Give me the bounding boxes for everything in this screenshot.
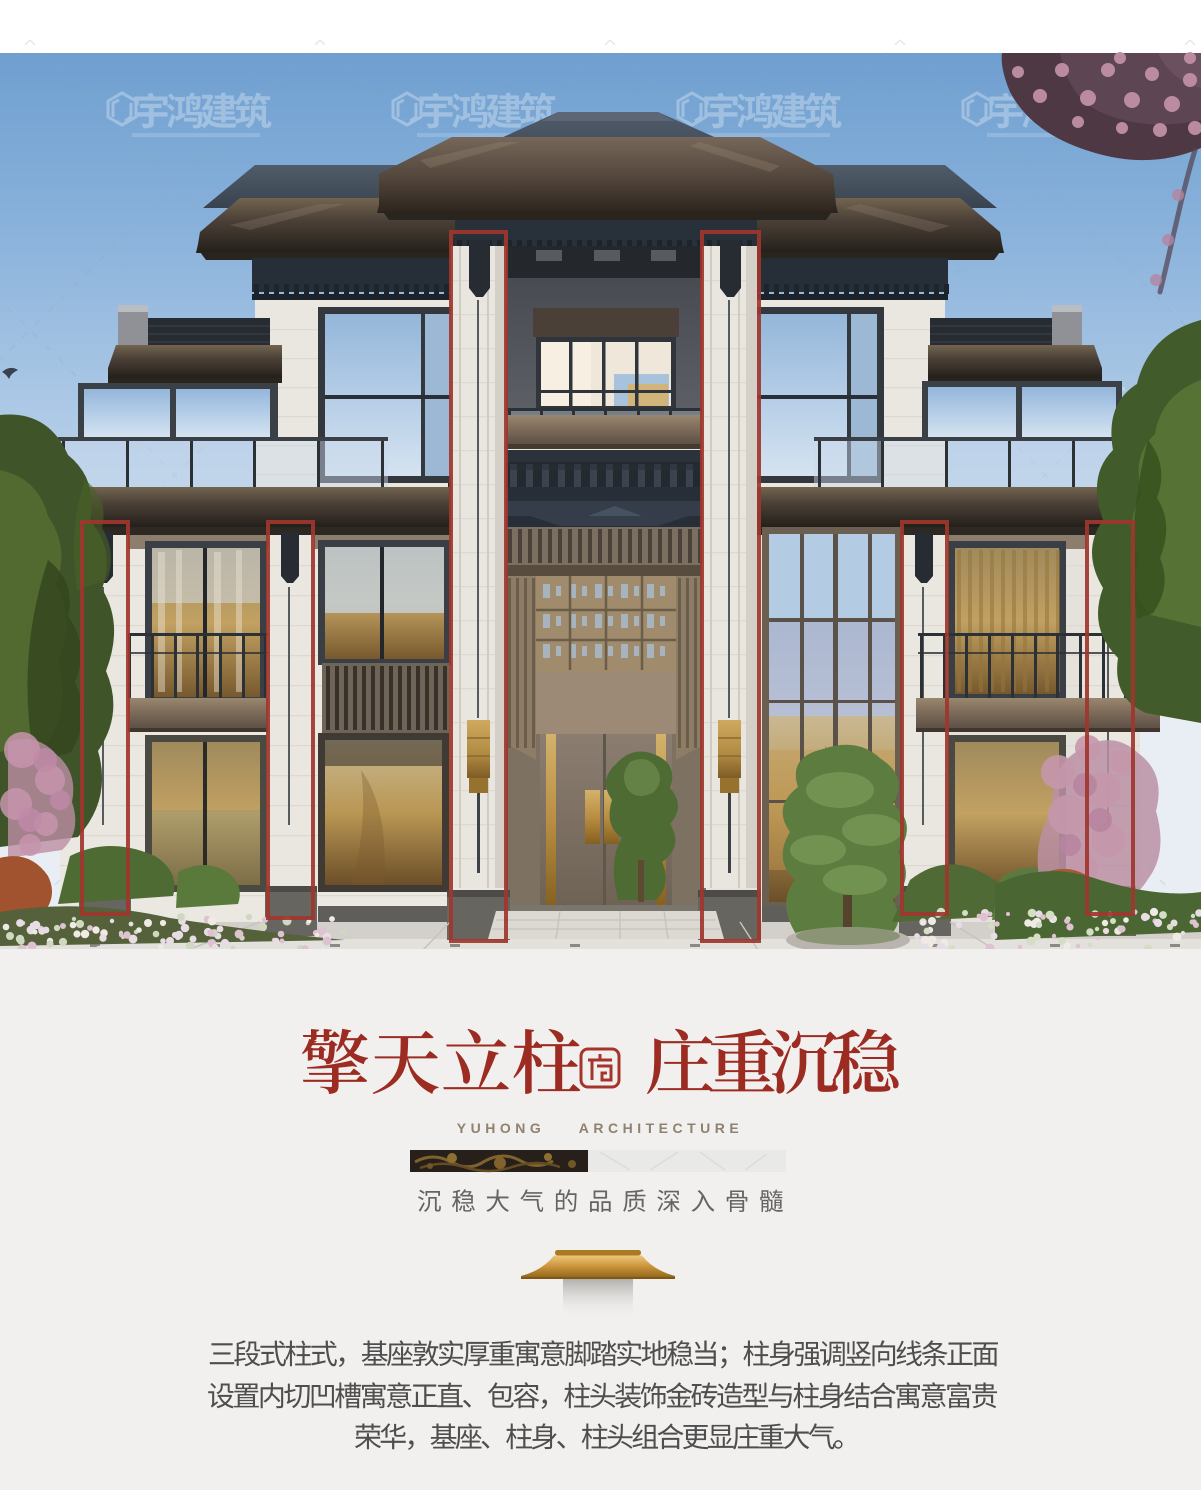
svg-text:YUHONG ARCHITECTURE: YUHONG ARCHITECTURE (457, 1120, 743, 1136)
